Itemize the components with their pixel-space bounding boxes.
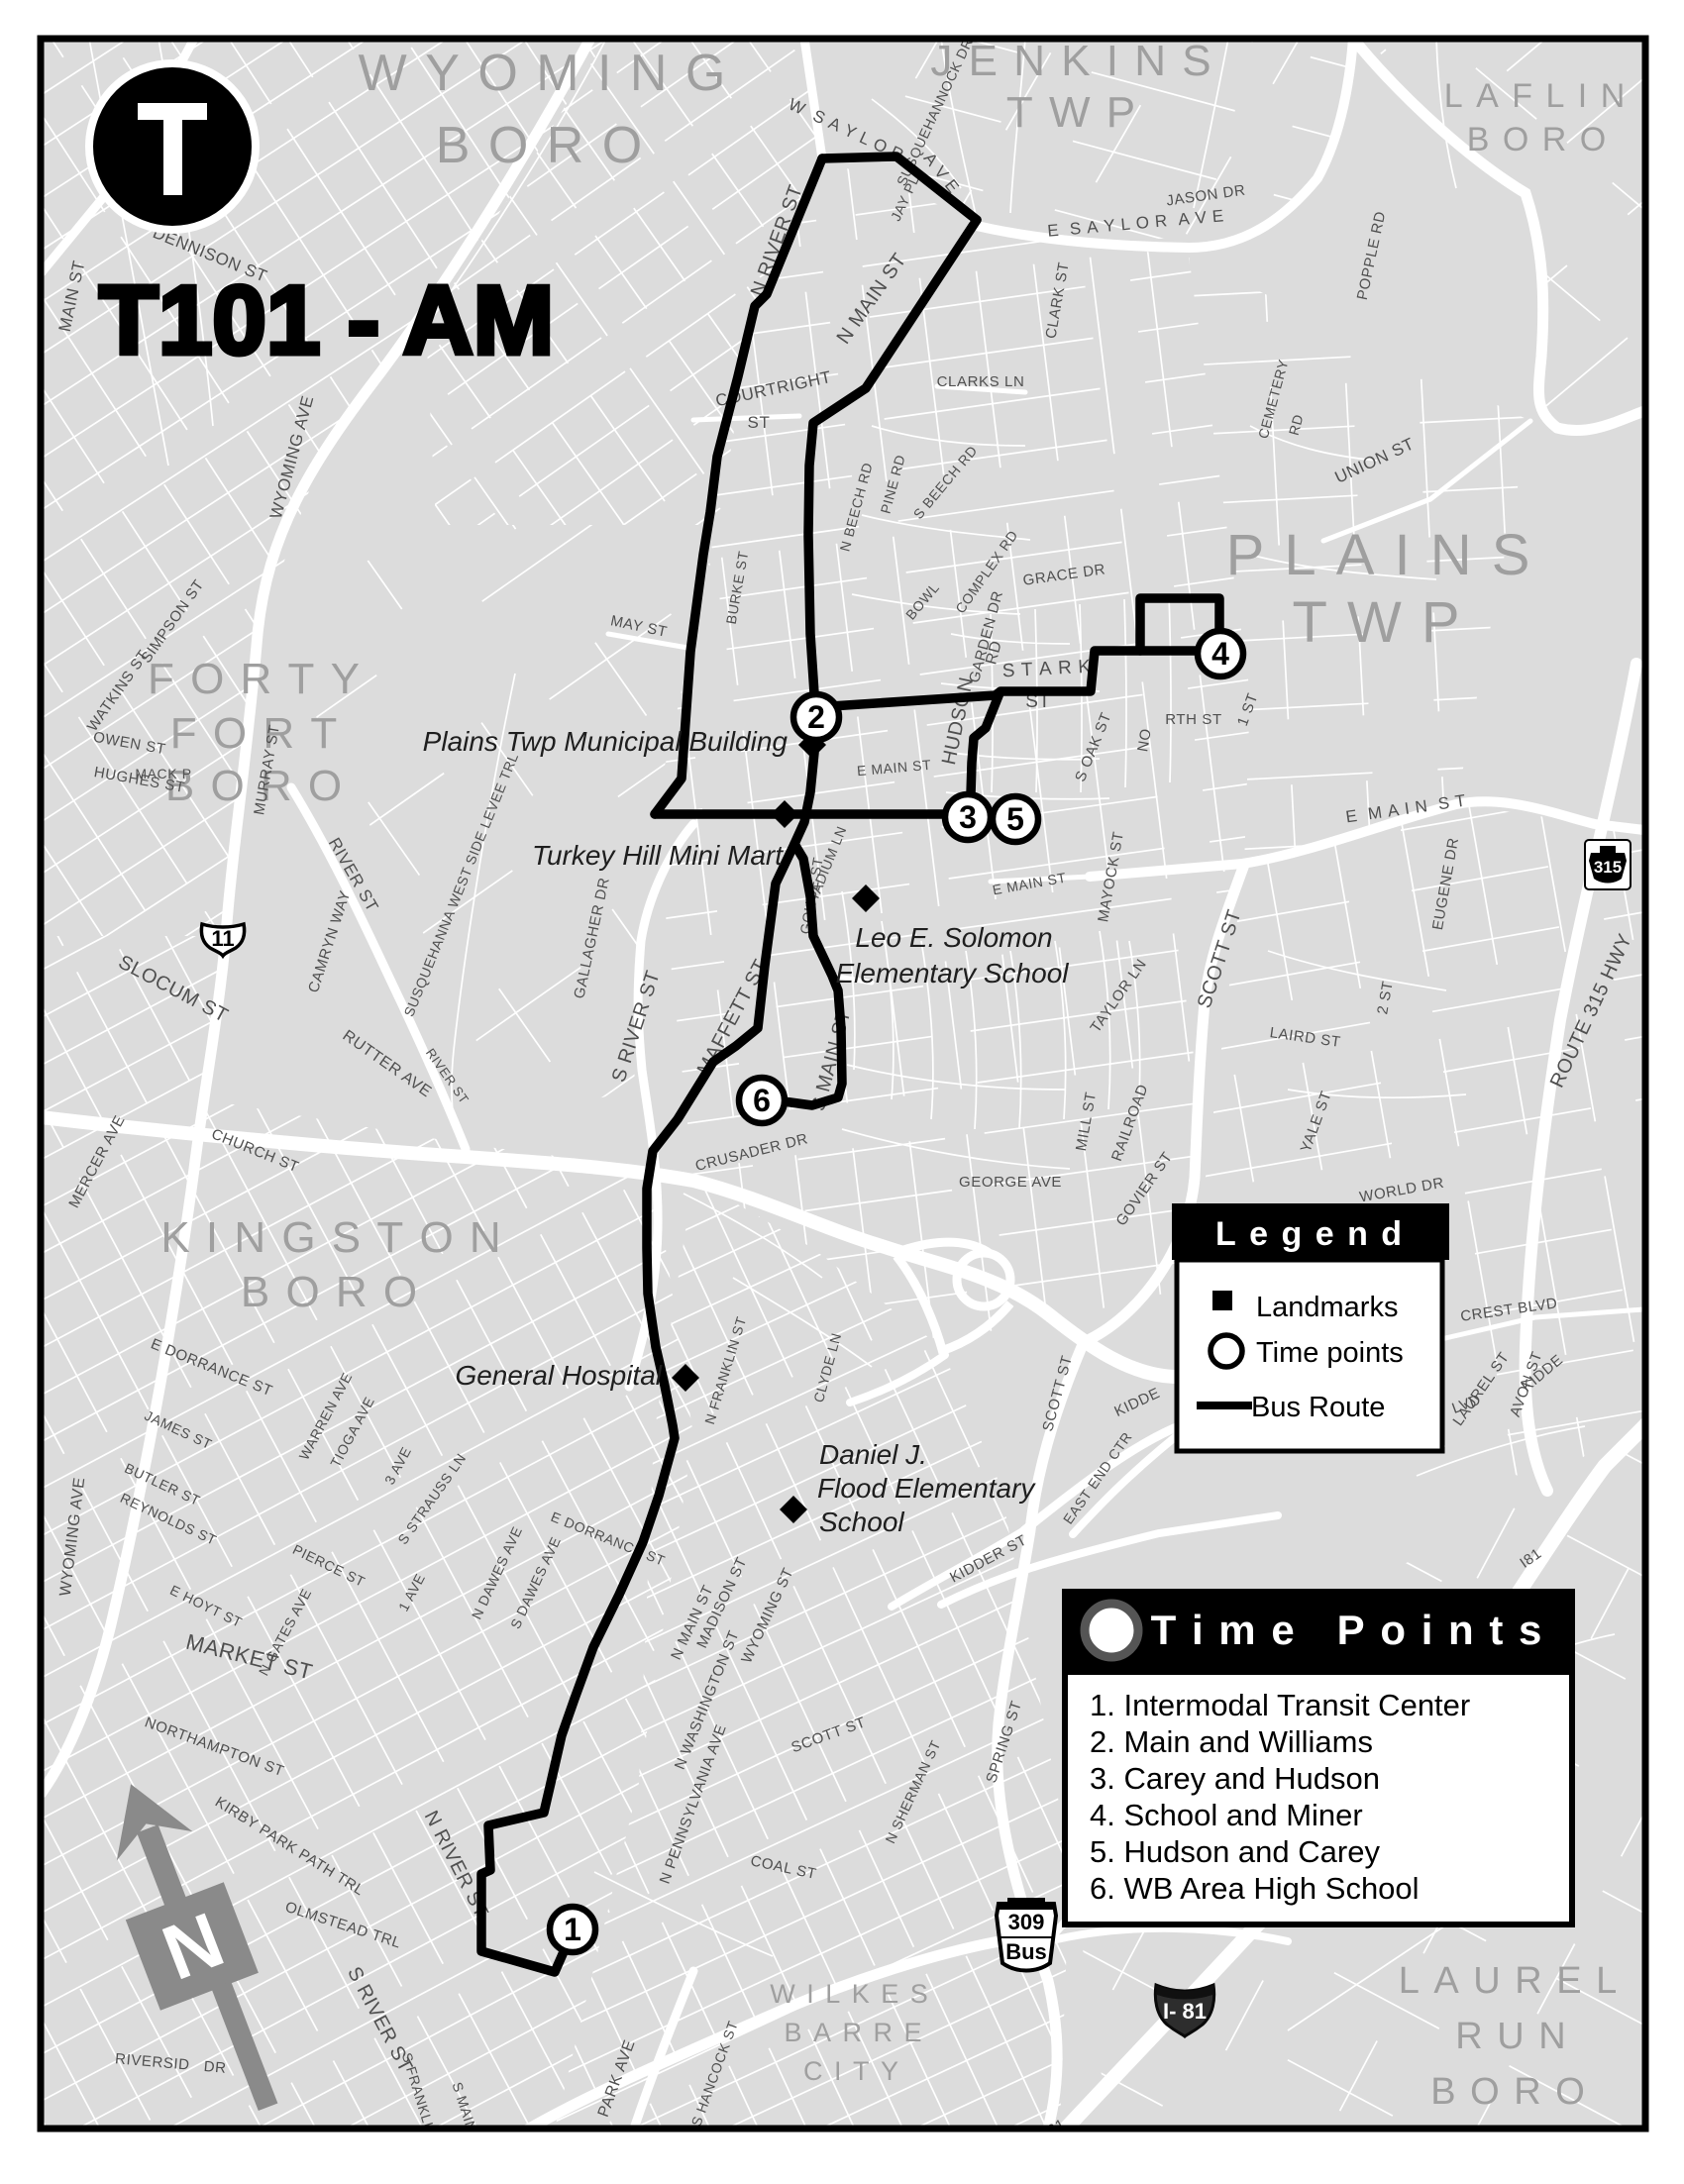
svg-text:B O R O: B O R O xyxy=(241,1268,419,1316)
svg-text:I- 81: I- 81 xyxy=(1163,1999,1207,2024)
svg-text:CLARKS LN: CLARKS LN xyxy=(937,373,1025,390)
svg-text:F O R T Y: F O R T Y xyxy=(148,655,362,703)
svg-text:Turkey Hill Mini Mart: Turkey Hill Mini Mart xyxy=(532,840,784,871)
svg-text:309: 309 xyxy=(1008,1910,1045,1934)
svg-text:RTH ST: RTH ST xyxy=(1165,711,1222,728)
svg-text:Bus Route: Bus Route xyxy=(1251,1392,1385,1423)
svg-text:Leo E. Solomon: Leo E. Solomon xyxy=(855,922,1052,953)
svg-text:P L A I N S: P L A I N S xyxy=(1226,523,1532,587)
svg-text:2. Main and Williams: 2. Main and Williams xyxy=(1090,1724,1373,1759)
svg-text:R U N: R U N xyxy=(1455,2016,1567,2057)
svg-text:Bus: Bus xyxy=(1005,1939,1047,1964)
svg-text:B O R O: B O R O xyxy=(1430,2071,1587,2113)
svg-text:B O R O: B O R O xyxy=(1467,121,1608,158)
svg-text:315: 315 xyxy=(1594,858,1622,877)
svg-text:2: 2 xyxy=(807,699,825,735)
svg-text:T W P: T W P xyxy=(1292,590,1461,655)
svg-text:School: School xyxy=(819,1507,904,1537)
svg-text:MACK P: MACK P xyxy=(135,766,191,781)
svg-text:L A F L I N: L A F L I N xyxy=(1444,77,1628,115)
svg-text:GEORGE AVE: GEORGE AVE xyxy=(959,1174,1062,1191)
svg-text:3: 3 xyxy=(959,799,977,835)
svg-text:4: 4 xyxy=(1211,636,1229,672)
svg-text:6: 6 xyxy=(753,1083,771,1118)
svg-text:Daniel J.: Daniel J. xyxy=(819,1439,927,1470)
svg-text:K I N G S T O N: K I N G S T O N xyxy=(160,1213,502,1262)
svg-text:ST: ST xyxy=(748,413,771,432)
svg-text:B O R O: B O R O xyxy=(436,117,644,174)
svg-text:W I L K E S: W I L K E S xyxy=(770,1979,930,2009)
svg-text:Time points: Time points xyxy=(1256,1337,1404,1369)
svg-text:11: 11 xyxy=(211,926,234,951)
svg-text:3. Carey and Hudson: 3. Carey and Hudson xyxy=(1090,1761,1380,1796)
svg-text:T101 - AM: T101 - AM xyxy=(99,265,554,374)
svg-text:Elementary School: Elementary School xyxy=(835,958,1069,988)
svg-text:General Hospital: General Hospital xyxy=(455,1360,662,1391)
svg-text:Flood Elementary: Flood Elementary xyxy=(817,1473,1036,1504)
svg-text:T i m e P o i n t s: T i m e P o i n t s xyxy=(1151,1607,1544,1653)
svg-text:Plains Twp Municipal Building: Plains Twp Municipal Building xyxy=(423,726,789,757)
svg-text:F O R T: F O R T xyxy=(170,709,339,758)
svg-text:T W P: T W P xyxy=(1006,88,1137,137)
svg-text:5: 5 xyxy=(1006,801,1024,837)
svg-text:6. WB Area High School: 6. WB Area High School xyxy=(1090,1871,1420,1906)
svg-text:4. School and Miner: 4. School and Miner xyxy=(1090,1798,1363,1832)
svg-text:1: 1 xyxy=(564,1912,581,1947)
svg-text:W Y O M I N G: W Y O M I N G xyxy=(359,45,728,102)
svg-text:1. Intermodal Transit Center: 1. Intermodal Transit Center xyxy=(1090,1688,1470,1722)
svg-text:L A U R E L: L A U R E L xyxy=(1399,1960,1620,2002)
svg-text:B A R R E: B A R R E xyxy=(784,2018,923,2047)
svg-text:L e g e n d: L e g e n d xyxy=(1215,1215,1404,1253)
svg-text:5. Hudson and Carey: 5. Hudson and Carey xyxy=(1090,1834,1380,1869)
svg-text:Landmarks: Landmarks xyxy=(1256,1292,1398,1323)
svg-text:C I T Y: C I T Y xyxy=(803,2056,900,2086)
